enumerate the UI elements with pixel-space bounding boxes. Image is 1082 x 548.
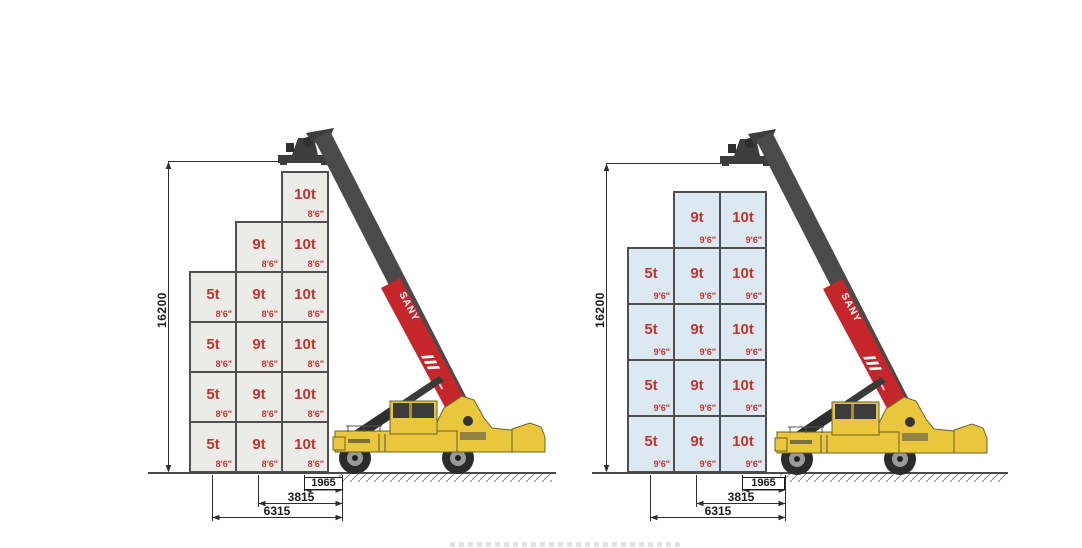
container-weight-label: 10t [732,434,754,449]
container-size-label: 9'6" [654,404,670,413]
outreach-dimension-3815: 3815 [710,490,772,503]
container-cell: 10t9'6" [719,303,767,361]
container-cell: 10t9'6" [719,359,767,417]
container-weight-label: 5t [644,378,657,393]
container-size-label: 9'6" [746,460,762,469]
container-size-label: 9'6" [654,460,670,469]
container-weight-label: 5t [644,322,657,337]
container-size-label: 9'6" [654,348,670,357]
container-cell: 5t9'6" [627,303,675,361]
container-weight-label: 10t [732,210,754,225]
container-size-label: 9'6" [700,348,716,357]
container-weight-label: 9t [690,322,703,337]
outreach-dimension-6315: 6315 [246,504,308,517]
container-weight-label: 5t [644,266,657,281]
cropped-caption-remnant [450,542,680,547]
outreach-dimension-3815: 3815 [270,490,332,503]
container-size-label: 9'6" [700,236,716,245]
container-size-label: 9'6" [700,460,716,469]
height-dimension-label: 16200 [593,280,607,340]
outreach-dimension-1965: 1965 [304,477,343,490]
container-cell: 9t9'6" [673,303,721,361]
container-stack-9ft6: 5t9'6"5t9'6"5t9'6"5t9'6"9t9'6"9t9'6"9t9'… [0,0,1082,548]
container-size-label: 9'6" [700,404,716,413]
container-cell: 5t9'6" [627,359,675,417]
container-size-label: 9'6" [746,348,762,357]
height-dimension-label: 16200 [155,280,169,340]
container-cell: 9t9'6" [673,359,721,417]
container-weight-label: 10t [732,378,754,393]
container-size-label: 9'6" [746,404,762,413]
container-weight-label: 10t [732,322,754,337]
container-weight-label: 9t [690,434,703,449]
container-size-label: 9'6" [700,292,716,301]
container-weight-label: 9t [690,266,703,281]
container-cell: 5t9'6" [627,415,675,473]
container-size-label: 9'6" [746,292,762,301]
spec-diagram-canvas: 5t8'6"5t8'6"5t8'6"5t8'6"9t8'6"9t8'6"9t8'… [0,0,1082,548]
container-size-label: 9'6" [746,236,762,245]
container-weight-label: 5t [644,434,657,449]
container-weight-label: 9t [690,210,703,225]
container-cell: 10t9'6" [719,247,767,305]
container-cell: 10t9'6" [719,415,767,473]
container-size-label: 9'6" [654,292,670,301]
container-weight-label: 10t [732,266,754,281]
outreach-dimension-1965: 1965 [742,477,785,490]
container-cell: 9t9'6" [673,415,721,473]
container-cell: 10t9'6" [719,191,767,249]
container-weight-label: 9t [690,378,703,393]
container-cell: 9t9'6" [673,191,721,249]
container-cell: 5t9'6" [627,247,675,305]
container-cell: 9t9'6" [673,247,721,305]
outreach-dimension-6315: 6315 [687,504,749,517]
